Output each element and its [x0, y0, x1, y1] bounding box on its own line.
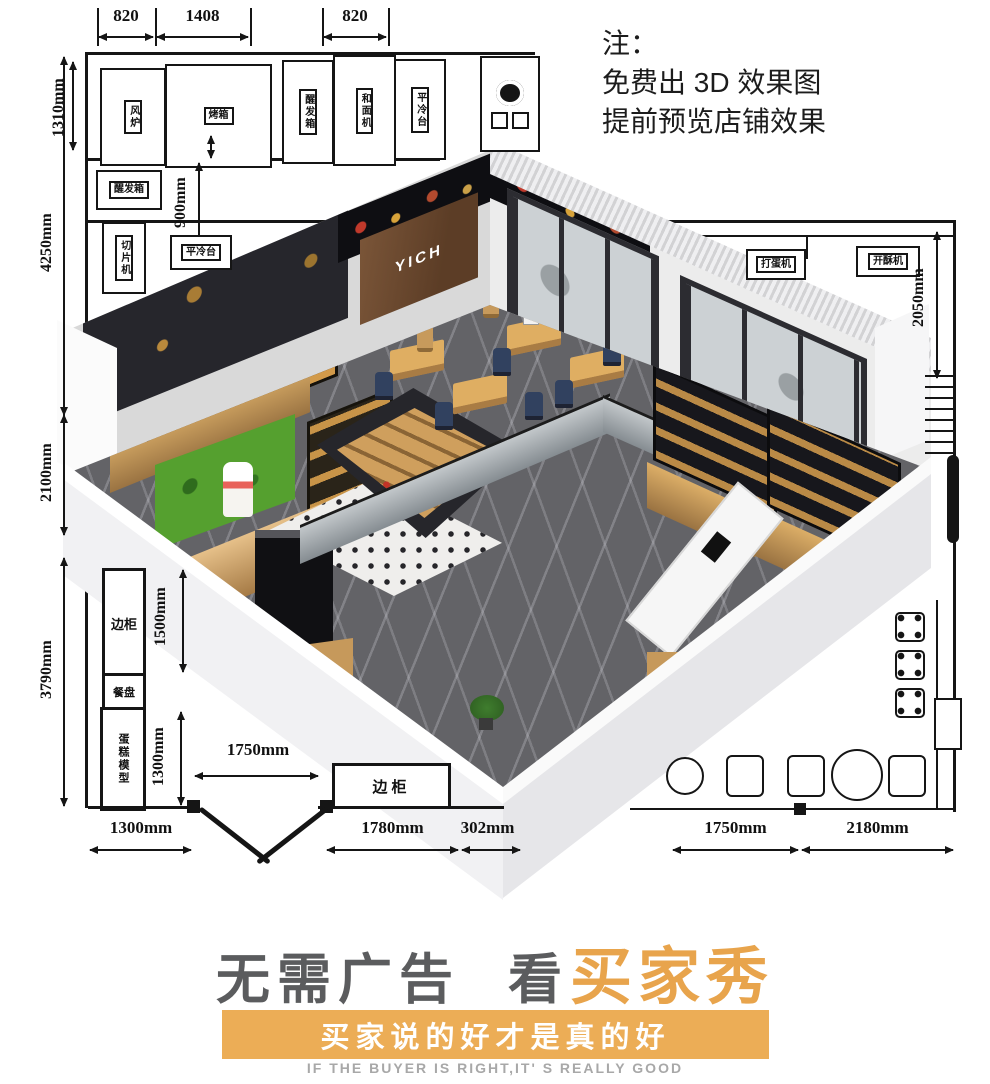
- plan-stool-table: [895, 688, 925, 718]
- dim-line-3790: [63, 558, 65, 806]
- plan-tray-label: 餐盘: [113, 684, 135, 700]
- plan-equip-slicer-label: 切片机: [115, 235, 133, 281]
- gold-banner: 买家说的好才是真的好: [222, 1010, 769, 1059]
- render-plant-pot: [479, 718, 493, 730]
- dim-1408: 1408: [157, 6, 248, 26]
- render-chair: [375, 372, 393, 400]
- plan-wall-bottom-right: [630, 808, 956, 810]
- plan-hinge-mark: [794, 803, 806, 815]
- plan-equip-cold-table-a: 平冷台: [394, 59, 446, 160]
- plan-side-cabinet-left-label: 边柜: [111, 614, 137, 633]
- dim-b1750: 1750mm: [688, 818, 783, 838]
- plan-equip-fan-oven-label: 风炉: [124, 100, 142, 134]
- plan-bench-line: [925, 452, 955, 454]
- plan-equip-sheeter-label: 开酥机: [868, 253, 908, 271]
- render-chair: [555, 380, 573, 408]
- note-title: 注：: [602, 24, 826, 63]
- dim-line-4250: [63, 57, 65, 415]
- plan-round-table-large: [831, 749, 883, 801]
- dim-line-b1750: [673, 849, 798, 851]
- plan-equip-proofer-b: 醒发箱: [96, 170, 162, 210]
- dim-line-820-left: [99, 36, 153, 38]
- render-sign-text: YICH: [395, 240, 443, 276]
- plan-equip-cold-table-a-label: 平冷台: [411, 87, 429, 133]
- plan-equip-oven-label: 烤箱: [204, 107, 234, 125]
- headline: 无需广告 看 买家秀: [0, 926, 990, 1016]
- plan-bench-line: [925, 408, 955, 410]
- plan-equip-cold-table-b: 平冷台: [170, 235, 232, 270]
- dim-4250: 4250mm: [38, 195, 56, 290]
- promo-image: YICH: [0, 0, 990, 1084]
- burner-icon: [496, 80, 524, 106]
- dim-900: 900mm: [172, 172, 190, 234]
- dim-820-right: 820: [324, 6, 386, 26]
- plan-equip-fan-oven: 风炉: [100, 68, 166, 166]
- plan-tick: [388, 8, 390, 46]
- plan-equip-slicer: 切片机: [102, 222, 146, 294]
- plan-equip-proofer-a: 醒发箱: [282, 60, 334, 164]
- plan-bench-line: [925, 386, 955, 388]
- plan-side-cabinet-left: 边柜: [102, 568, 146, 678]
- plan-bench-line: [925, 397, 955, 399]
- plan-equip-proofer-a-label: 醒发箱: [299, 89, 317, 135]
- plan-wall-bottom-left: [88, 806, 193, 809]
- plan-bench-line: [925, 375, 955, 377]
- plan-square-table: [888, 755, 926, 797]
- door-post-left: [187, 800, 200, 813]
- dim-b2180: 2180mm: [830, 818, 925, 838]
- plan-bench-line: [925, 441, 955, 443]
- plan-wall-top: [85, 52, 535, 55]
- plan-bench-line: [925, 430, 955, 432]
- dim-line-2050: [936, 232, 938, 378]
- plan-square-table: [726, 755, 764, 797]
- dim-1300-left: 1300mm: [150, 722, 168, 792]
- render-chair: [435, 402, 453, 430]
- render-chair: [525, 392, 543, 420]
- dim-b302: 302mm: [455, 818, 520, 838]
- dim-door-1750: 1750mm: [203, 740, 313, 760]
- dim-3790: 3790mm: [38, 622, 56, 717]
- dim-b1300: 1300mm: [92, 818, 190, 838]
- render-table: [453, 372, 507, 414]
- dim-2100: 2100mm: [38, 425, 56, 520]
- note-line-2: 提前预览店铺效果: [602, 102, 826, 141]
- plan-equip-egg-beater: 打蛋机: [746, 249, 806, 280]
- sink-basin: [491, 112, 508, 129]
- plan-square-table: [787, 755, 825, 797]
- plan-bench-seat: [947, 455, 959, 543]
- plan-tray-cabinet: 餐盘: [102, 673, 146, 711]
- note-block: 注： 免费出 3D 效果图 提前预览店铺效果: [602, 24, 826, 141]
- plan-equip-mixer: 和面机: [333, 55, 396, 166]
- plan-cake-model-cabinet: 蛋糕模型: [100, 707, 146, 811]
- headline-gold: 买家秀: [570, 926, 774, 1016]
- plan-equip-egg-beater-label: 打蛋机: [756, 256, 796, 274]
- dim-line-b2180: [802, 849, 953, 851]
- plan-equip-cold-table-b-label: 平冷台: [181, 244, 221, 262]
- dim-line-1500: [182, 570, 184, 672]
- dim-line-820-right: [324, 36, 386, 38]
- plan-counter-end: [934, 698, 962, 750]
- plan-stool-table: [895, 612, 925, 642]
- dim-b1780: 1780mm: [330, 818, 455, 838]
- plan-side-cabinet-bottom-label: 边柜: [372, 776, 410, 797]
- dim-line-b302: [462, 849, 520, 851]
- dim-1310: 1310mm: [50, 72, 68, 144]
- plan-stool-table: [895, 650, 925, 680]
- plan-tick: [250, 8, 252, 46]
- dim-line-2100: [63, 415, 65, 535]
- plan-bench-line: [925, 419, 955, 421]
- plan-equip-oven: 烤箱: [165, 64, 272, 168]
- plan-cake-model-label: 蛋糕模型: [115, 733, 131, 785]
- dim-line-1310: [72, 62, 74, 150]
- dim-820-left: 820: [99, 6, 153, 26]
- plan-side-cabinet-bottom: 边柜: [332, 763, 451, 809]
- headline-gray: 无需广告: [216, 935, 460, 1014]
- dim-line-1300-left: [180, 712, 182, 805]
- plan-fixture-icons: [480, 56, 540, 152]
- dim-1500: 1500mm: [152, 582, 170, 652]
- headline-mid: 看: [508, 935, 562, 1014]
- note-line-1: 免费出 3D 效果图: [602, 63, 826, 102]
- dim-line-b1300: [90, 849, 191, 851]
- plan-round-table: [666, 757, 704, 795]
- sink-icon: [491, 112, 529, 129]
- dim-line-1408: [157, 36, 248, 38]
- dim-2050: 2050mm: [910, 262, 928, 334]
- english-slogan: IF THE BUYER IS RIGHT,IT' S REALLY GOOD: [0, 1060, 990, 1076]
- render-chair: [493, 348, 511, 376]
- plan-equip-mixer-label: 和面机: [356, 88, 374, 134]
- sink-basin: [512, 112, 529, 129]
- plan-oven-arrow: [210, 136, 212, 158]
- plan-equip-proofer-b-label: 醒发箱: [109, 181, 149, 199]
- dim-line-door-1750: [195, 775, 318, 777]
- gold-banner-text: 买家说的好才是真的好: [320, 1014, 670, 1056]
- dim-line-b1780: [327, 849, 458, 851]
- render-cake-tower: [223, 462, 253, 517]
